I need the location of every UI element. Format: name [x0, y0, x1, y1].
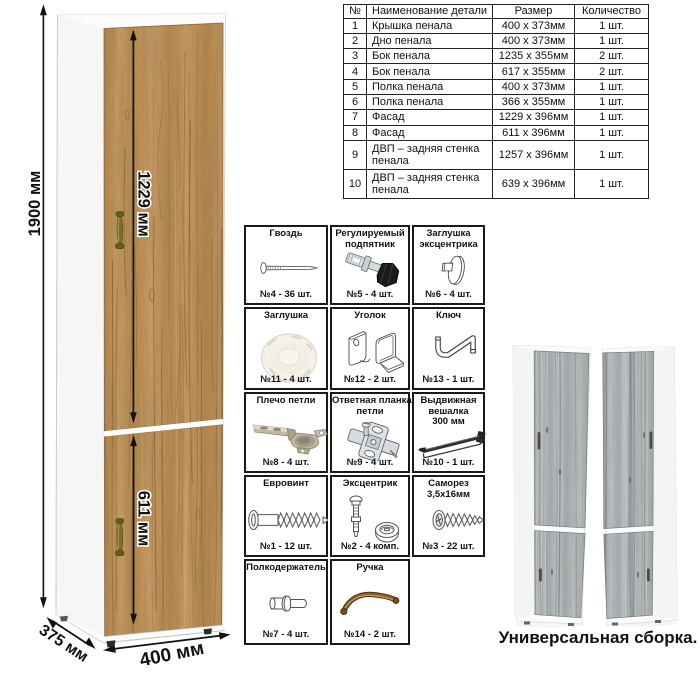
svg-text:611 мм: 611 мм: [135, 491, 153, 547]
svg-text:1900 мм: 1900 мм: [26, 171, 44, 237]
svg-text:400 мм: 400 мм: [138, 638, 206, 672]
svg-text:1229 мм: 1229 мм: [135, 171, 153, 237]
